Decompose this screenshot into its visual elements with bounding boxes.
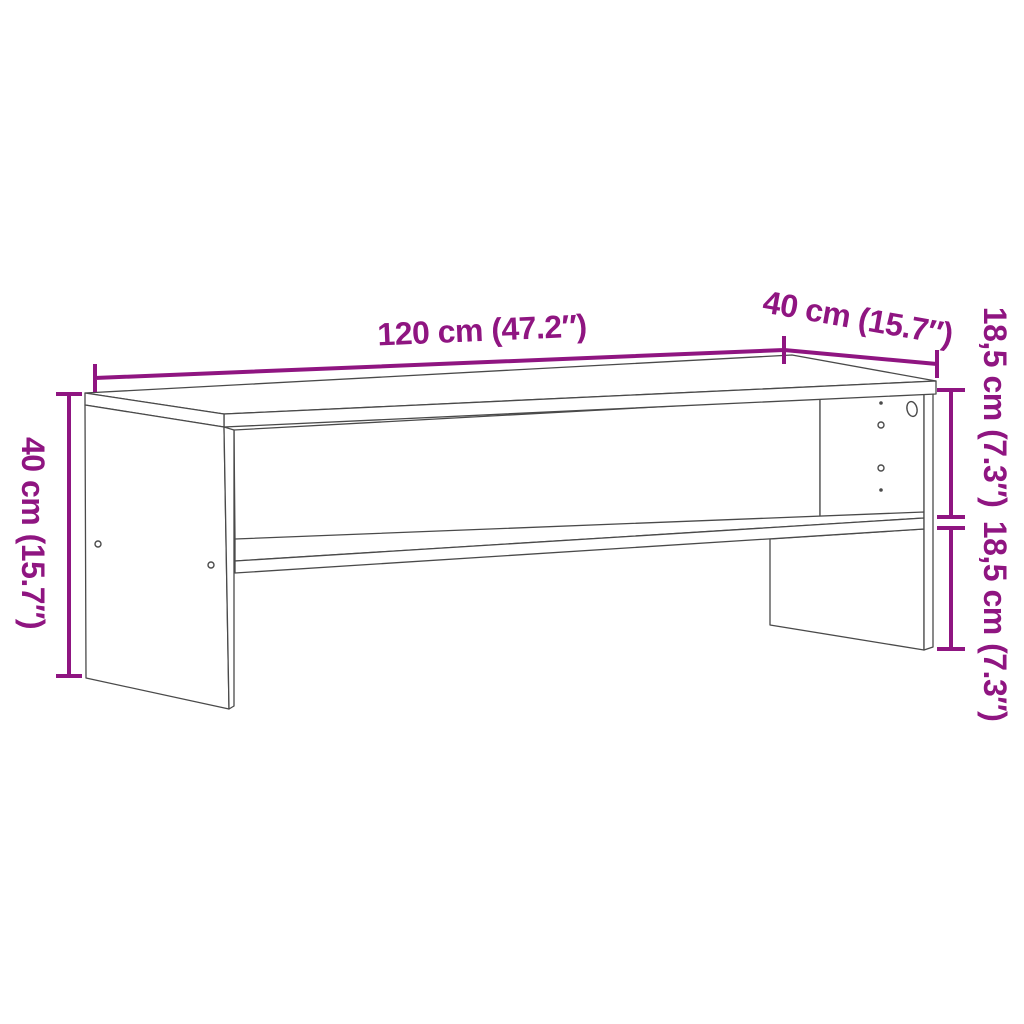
upper-shelf-dimension-label: 18,5 cm (7.3″) <box>977 307 1013 507</box>
shelf-pin-hole <box>879 488 883 492</box>
dimension-diagram-svg: 120 cm (47.2″) 40 cm (15.7″) 40 cm (15.7… <box>0 0 1024 1024</box>
lower-shelf-dimension-label: 18,5 cm (7.3″) <box>977 521 1013 721</box>
left-side-panel <box>85 405 229 709</box>
lower-shelf-dimension-line <box>937 528 965 649</box>
shelf-pin-hole <box>878 422 884 428</box>
shelf-pin-hole <box>879 401 883 405</box>
upper-shelf-dimension-line <box>937 390 965 517</box>
screw-hole <box>95 541 101 547</box>
furniture-wireframe <box>85 355 936 709</box>
shelf-pin-hole <box>878 465 884 471</box>
width-dimension-label: 120 cm (47.2″) <box>377 307 588 352</box>
bottom-support-panel <box>770 529 924 650</box>
right-panel-front-edge <box>924 385 933 650</box>
depth-dimension-label: 40 cm (15.7″) <box>760 284 955 353</box>
height-dimension-line <box>56 394 82 676</box>
height-dimension-label: 40 cm (15.7″) <box>15 437 51 629</box>
screw-hole <box>208 562 214 568</box>
product-dimension-diagram: 120 cm (47.2″) 40 cm (15.7″) 40 cm (15.7… <box>0 0 1024 1024</box>
